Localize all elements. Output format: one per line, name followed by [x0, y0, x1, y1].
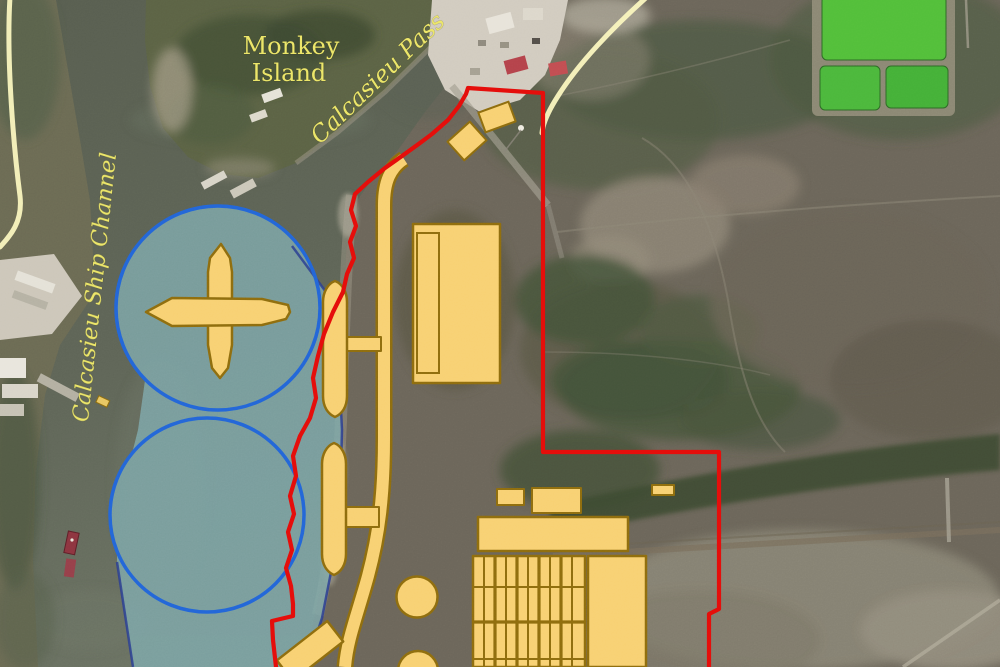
satellite-map[interactable]: Monkey Island Calcasieu Pass Calcasieu S… [0, 0, 1000, 667]
island-label-line2: Island [252, 59, 327, 87]
map-canvas: Monkey Island Calcasieu Pass Calcasieu S… [0, 0, 1000, 667]
island-label-line1: Monkey [243, 32, 340, 60]
grain-overlay [0, 0, 1000, 667]
